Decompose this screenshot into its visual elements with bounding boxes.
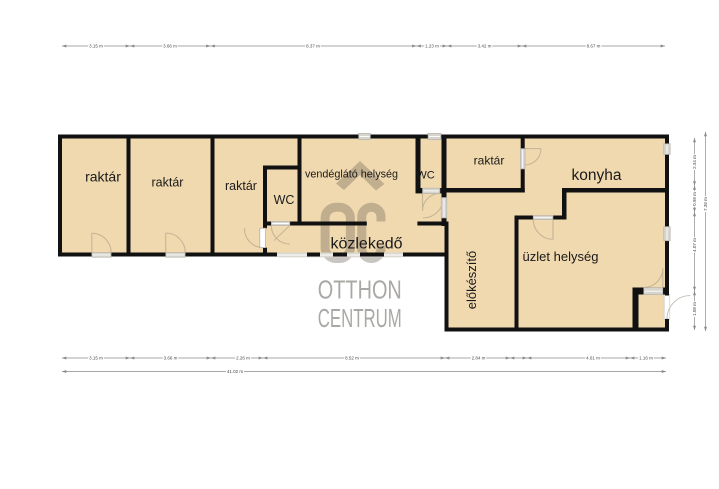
svg-text:vendéglátó helység: vendéglátó helység xyxy=(305,168,398,180)
svg-text:raktár: raktár xyxy=(474,154,505,168)
svg-text:CENTRUM: CENTRUM xyxy=(318,303,402,333)
svg-text:7.36 m: 7.36 m xyxy=(703,197,708,211)
svg-text:raktár: raktár xyxy=(152,175,184,189)
svg-text:3.66 m: 3.66 m xyxy=(163,44,177,49)
svg-text:konyha: konyha xyxy=(572,167,622,184)
svg-text:4.07 m: 4.07 m xyxy=(692,238,697,252)
svg-text:előkészítő: előkészítő xyxy=(464,251,479,310)
svg-text:raktár: raktár xyxy=(225,179,257,193)
svg-text:3.15 m: 3.15 m xyxy=(89,356,103,361)
svg-text:WC: WC xyxy=(274,193,295,207)
svg-text:3.42 m: 3.42 m xyxy=(478,44,492,49)
svg-text:2.34 m: 2.34 m xyxy=(692,155,697,169)
svg-text:8.37 m: 8.37 m xyxy=(306,44,320,49)
svg-text:0.98 m: 0.98 m xyxy=(692,192,697,206)
svg-text:8.52 m: 8.52 m xyxy=(345,356,359,361)
svg-text:4.61 m: 4.61 m xyxy=(586,356,600,361)
svg-text:1.23 m: 1.23 m xyxy=(425,44,439,49)
svg-text:raktár: raktár xyxy=(85,168,121,184)
svg-text:WC: WC xyxy=(416,169,434,181)
svg-text:2.26 m: 2.26 m xyxy=(236,356,250,361)
svg-text:1.16 m: 1.16 m xyxy=(639,356,653,361)
svg-text:1.08 m: 1.08 m xyxy=(692,302,697,316)
svg-text:3.66 m: 3.66 m xyxy=(164,356,178,361)
svg-text:2.84 m: 2.84 m xyxy=(472,356,486,361)
svg-text:3.15 m: 3.15 m xyxy=(89,44,103,49)
svg-text:8.67 m: 8.67 m xyxy=(587,44,601,49)
svg-text:41.02 m: 41.02 m xyxy=(227,369,244,374)
svg-text:OTTHON: OTTHON xyxy=(318,275,402,305)
svg-text:közlekedő: közlekedő xyxy=(330,236,402,253)
svg-text:üzlet helység: üzlet helység xyxy=(523,249,599,264)
